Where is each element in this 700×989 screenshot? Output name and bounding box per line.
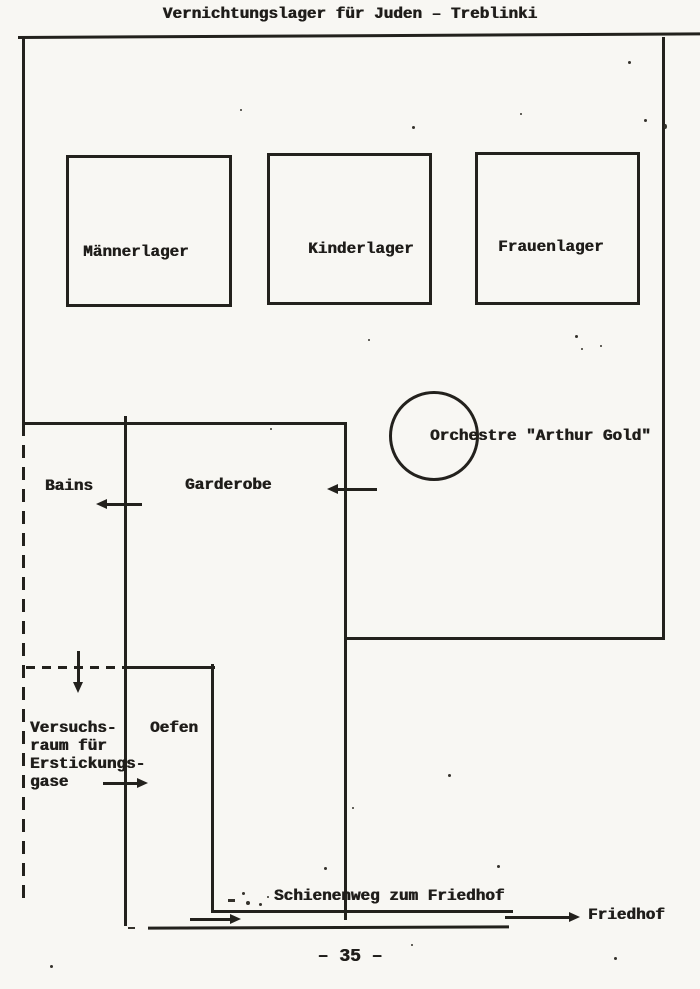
scan-speckle [411,944,413,946]
arrow-into-versuchsraum-shaft [77,651,80,683]
scan-speckle [412,126,415,129]
scan-speckle [614,957,617,960]
scan-speckle [664,124,667,129]
arrow-to-friedhof-head [569,912,580,922]
oefen-wall-top [124,666,215,669]
garderobe-wall-top [25,422,347,425]
rail-track-lower-line [148,925,509,929]
scan-dot-cluster [242,892,245,895]
page-title: Vernichtungslager für Juden – Treblinki [0,6,700,24]
arrow-rail-direction-head [230,914,241,924]
barracks-box-maennerlager: Männerlager [66,155,232,307]
barracks-label-maennerlager: Männerlager [83,244,189,262]
friedhof-label: Friedhof [588,907,665,925]
oefen-wall-right [211,664,214,913]
bains-label: Bains [45,478,93,496]
rail-track-upper-line [211,910,513,913]
arrow-into-oefen-head [137,778,148,788]
scan-speckle [575,335,578,338]
scan-speckle [628,61,631,64]
scan-speckle [497,865,500,868]
schienenweg-label: Schienenweg zum Friedhof [274,888,504,906]
arrow-into-bains-head [96,499,107,509]
scan-speckle [240,109,242,111]
camp-wall-left-lower-dashed [22,423,25,903]
page-number: – 35 – [0,948,700,968]
bains-garderobe-divider-wall [124,416,127,926]
scan-dot-cluster [267,896,269,898]
scan-speckle [581,348,583,350]
orchestra-label: Orchestre "Arthur Gold" [430,428,651,446]
scan-speckle [600,345,602,347]
scan-speckle [324,867,327,870]
scan-speckle [270,428,272,430]
scan-speckle [520,113,522,115]
garderobe-label: Garderobe [185,477,271,495]
scan-dot-cluster [228,899,235,902]
scan-dot-cluster [246,901,250,905]
barracks-label-frauenlager: Frauenlager [498,239,604,257]
arrow-into-oefen-shaft [103,782,139,785]
arrow-into-garderobe-head [327,484,338,494]
arrow-into-bains-shaft [106,503,142,506]
scan-dot-cluster [259,903,262,906]
scan-speckle [644,119,647,122]
scan-speckle [50,965,53,968]
arrow-into-garderobe-shaft [337,488,377,491]
scanned-document-page: Vernichtungslager für Juden – Treblinki … [0,0,700,989]
rail-track-dash-fragment [128,927,135,929]
scan-speckle [352,807,354,809]
arrow-to-friedhof-shaft [505,916,571,919]
versuchsraum-wall-top-dashed [26,666,126,669]
scan-speckle [448,774,451,777]
camp-wall-southeast [345,637,665,640]
barracks-box-kinderlager: Kinderlager [267,153,432,305]
arrow-rail-direction-shaft [190,918,232,921]
oefen-label: Oefen [150,720,198,738]
barracks-label-kinderlager: Kinderlager [308,241,414,259]
camp-wall-top [18,32,700,39]
barracks-box-frauenlager: Frauenlager [475,152,640,305]
scan-speckle [368,339,370,341]
garderobe-wall-right [344,422,347,920]
versuchsraum-label: Versuchs- raum für Erstickungs- gase [30,719,145,791]
camp-wall-left-upper [22,37,25,423]
arrow-into-versuchsraum-head [73,682,83,693]
